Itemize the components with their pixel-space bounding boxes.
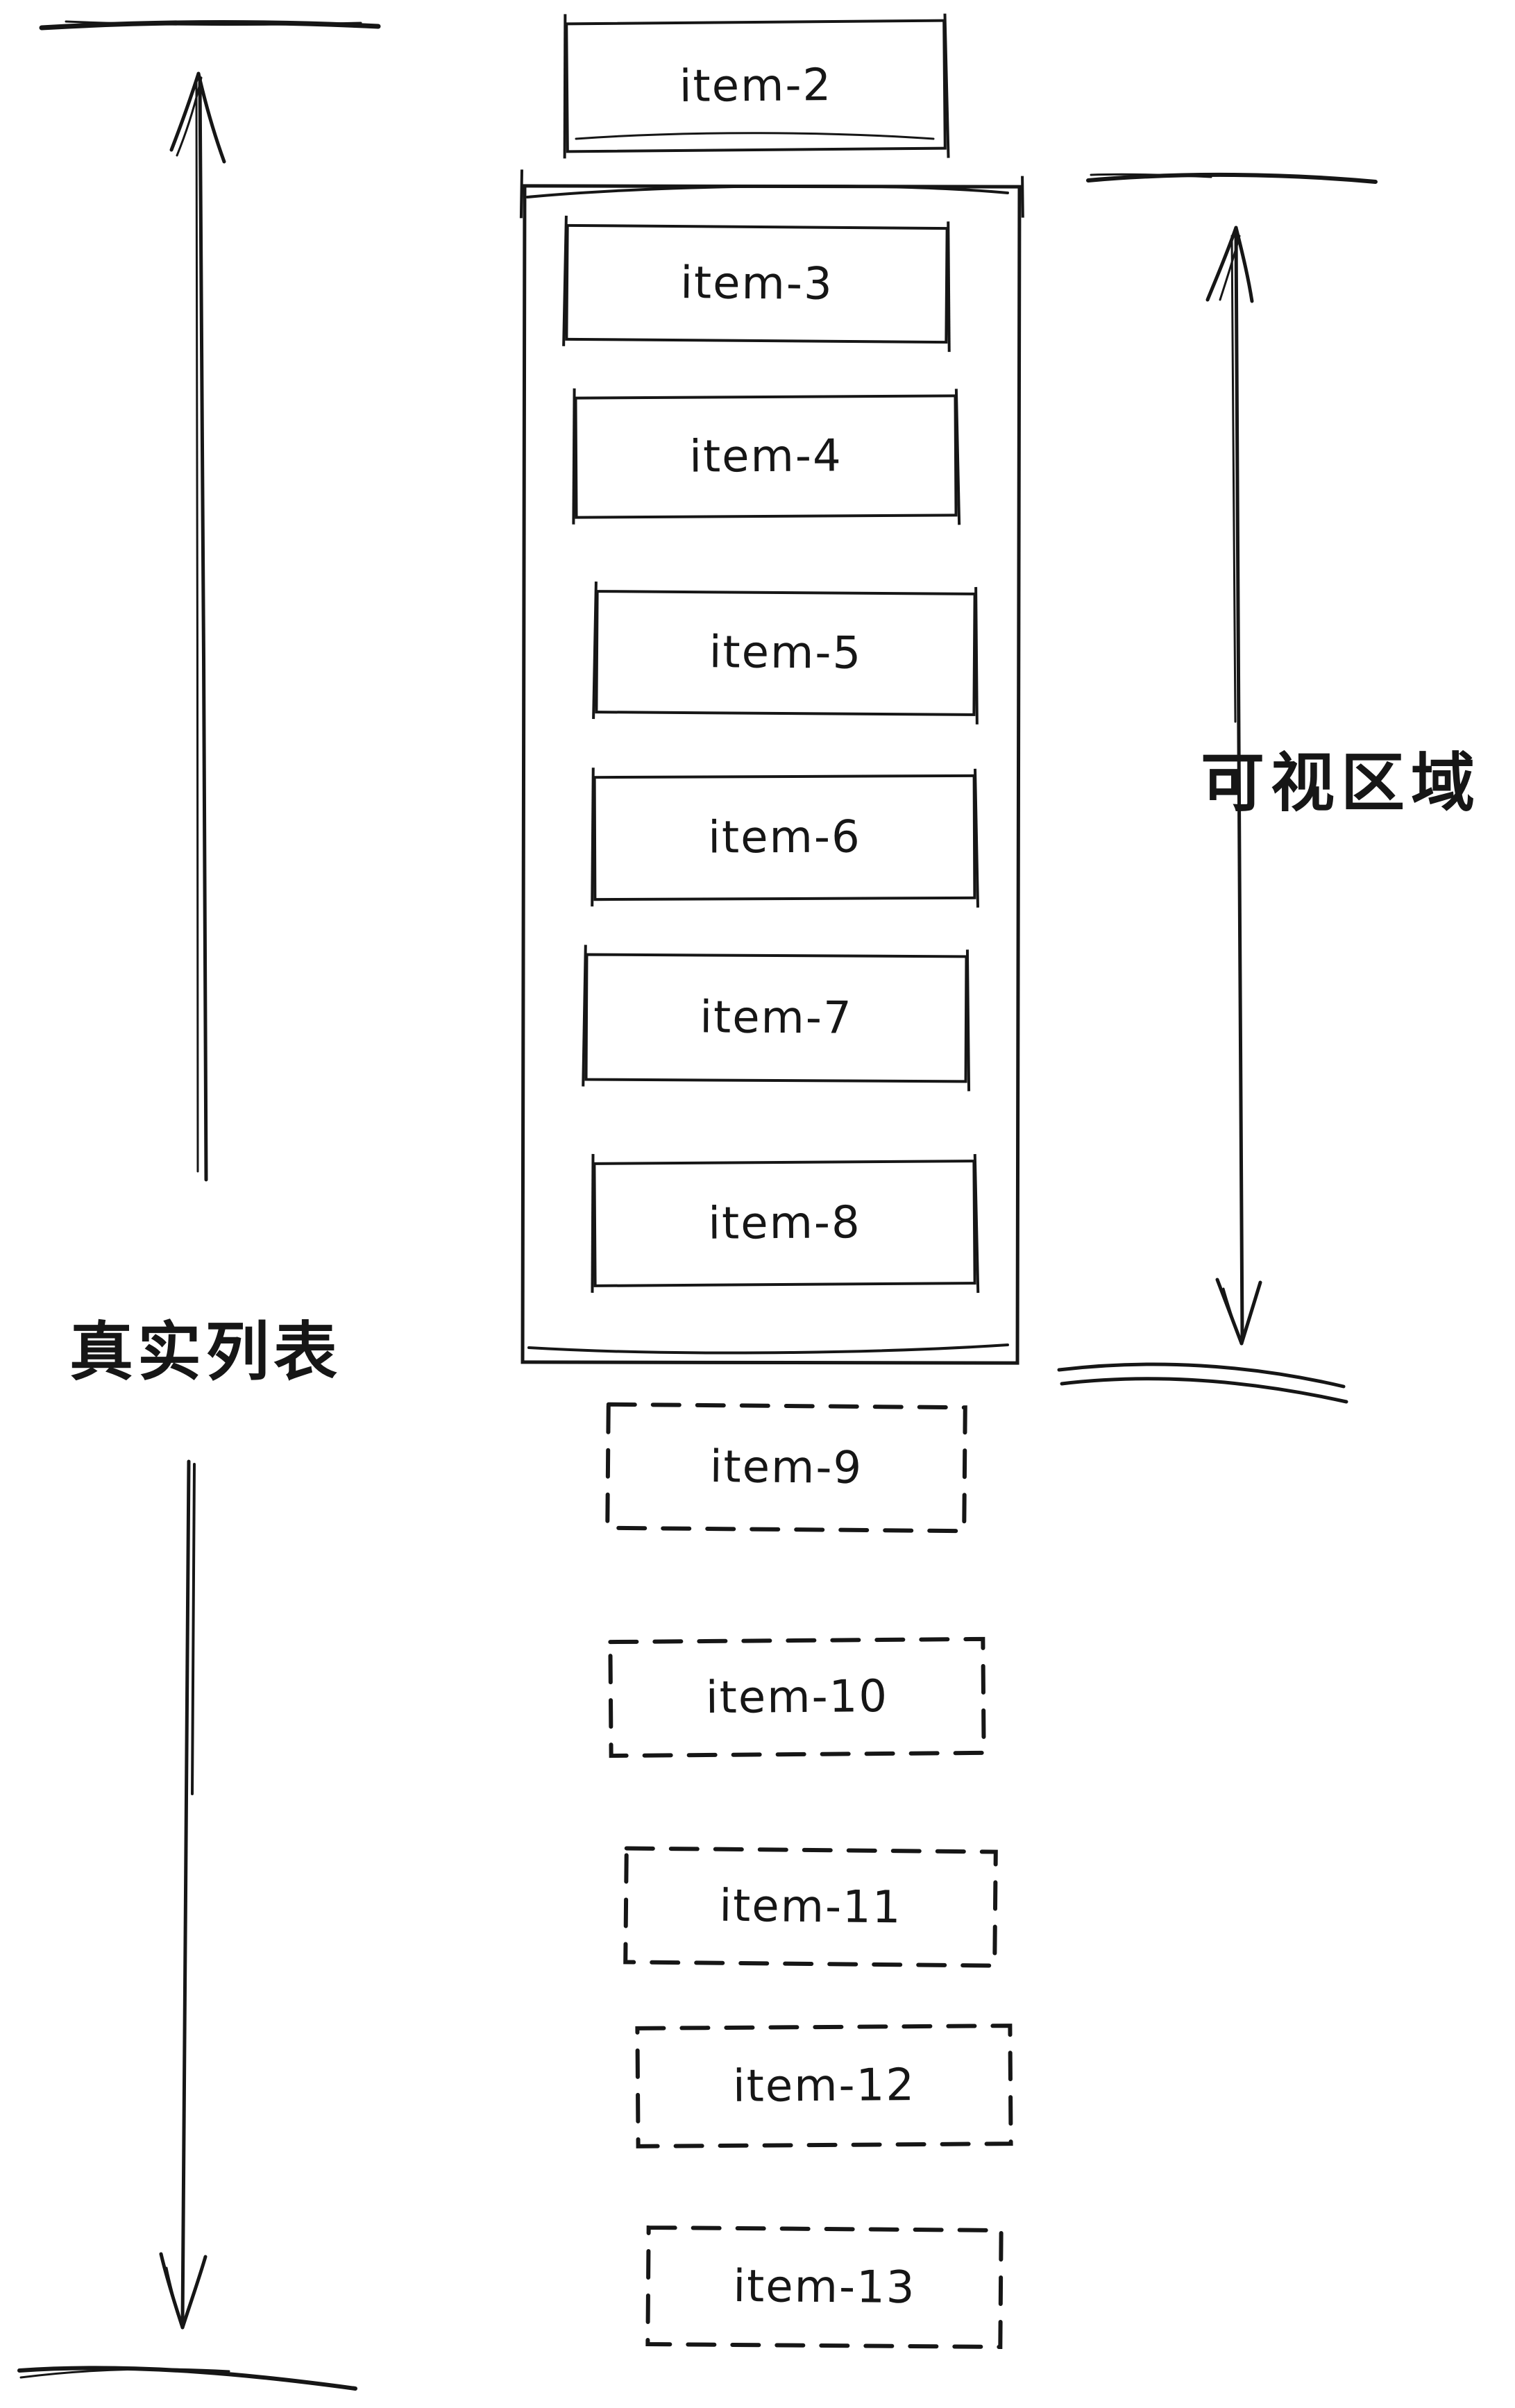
sketch-stroke xyxy=(167,2268,180,2323)
list-item-13: item-13 xyxy=(645,2225,1004,2350)
sketch-stroke xyxy=(1220,236,1239,300)
sketch-stroke xyxy=(1242,1282,1260,1343)
dashed-border xyxy=(607,1636,986,1758)
viewport-bottom-boundary-line xyxy=(1059,1364,1346,1402)
list-item-label: item-6 xyxy=(708,812,861,864)
list-item-3: item-3 xyxy=(565,224,948,344)
sketch-stroke xyxy=(1088,175,1376,182)
list-item-6: item-6 xyxy=(593,774,976,901)
list-item-4: item-4 xyxy=(574,394,957,518)
sketch-stroke xyxy=(1236,228,1252,301)
dashed-border xyxy=(634,2023,1013,2149)
list-item-12: item-12 xyxy=(634,2023,1013,2149)
list-item-11: item-11 xyxy=(623,1845,999,1968)
real-list-label: 真实列表 xyxy=(69,1300,341,1393)
dashed-border xyxy=(604,1402,968,1534)
list-item-label: item-8 xyxy=(708,1197,861,1250)
sketch-stroke xyxy=(177,78,201,155)
sketch-stroke xyxy=(198,74,224,162)
list-item-label: item-2 xyxy=(679,60,832,112)
sketch-stroke xyxy=(21,2369,229,2377)
sketch-stroke xyxy=(1091,174,1211,177)
sketch-stroke xyxy=(1224,1289,1239,1339)
real-list-bottom-boundary-line xyxy=(19,2368,355,2389)
sketch-stroke xyxy=(1059,1364,1344,1387)
real-list-extent-arrow-down xyxy=(161,1461,205,2328)
sketch-stroke xyxy=(66,22,361,25)
sketch-stroke xyxy=(196,83,198,1171)
sketch-stroke xyxy=(200,78,206,1180)
viewport-top-boundary-line xyxy=(1088,174,1376,182)
dashed-border xyxy=(645,2225,1004,2350)
list-item-label: item-5 xyxy=(709,627,863,679)
list-item-2: item-2 xyxy=(565,19,947,153)
list-item-7: item-7 xyxy=(585,953,968,1083)
sketch-stroke xyxy=(183,2257,205,2328)
list-item-8: item-8 xyxy=(593,1160,976,1287)
sketch-stroke xyxy=(183,1461,189,2325)
sketch-stroke xyxy=(1217,1280,1242,1343)
list-item-label: item-7 xyxy=(700,992,853,1044)
sketch-stroke xyxy=(192,1464,194,1794)
viewport-label: 可视区域 xyxy=(1201,731,1481,824)
sketch-stroke xyxy=(42,22,378,28)
sketch-stroke xyxy=(161,2254,183,2328)
list-item-label: item-3 xyxy=(680,257,833,310)
list-item-label: item-4 xyxy=(689,430,843,482)
dashed-border xyxy=(623,1845,999,1968)
real-list-extent-arrow-up xyxy=(171,74,224,1180)
sketch-stroke xyxy=(171,74,198,150)
virtual-list-diagram: 真实列表 可视区域 item-2 item-3 item-4 item-5 it… xyxy=(0,0,1515,2408)
sketch-stroke xyxy=(1062,1379,1346,1402)
list-item-10: item-10 xyxy=(607,1636,986,1758)
list-item-5: item-5 xyxy=(595,590,976,716)
sketch-stroke xyxy=(1208,228,1236,300)
real-list-top-boundary-line xyxy=(42,22,378,28)
sketch-stroke xyxy=(19,2368,355,2389)
sketch-stroke xyxy=(1232,236,1235,722)
list-item-9: item-9 xyxy=(604,1402,968,1534)
